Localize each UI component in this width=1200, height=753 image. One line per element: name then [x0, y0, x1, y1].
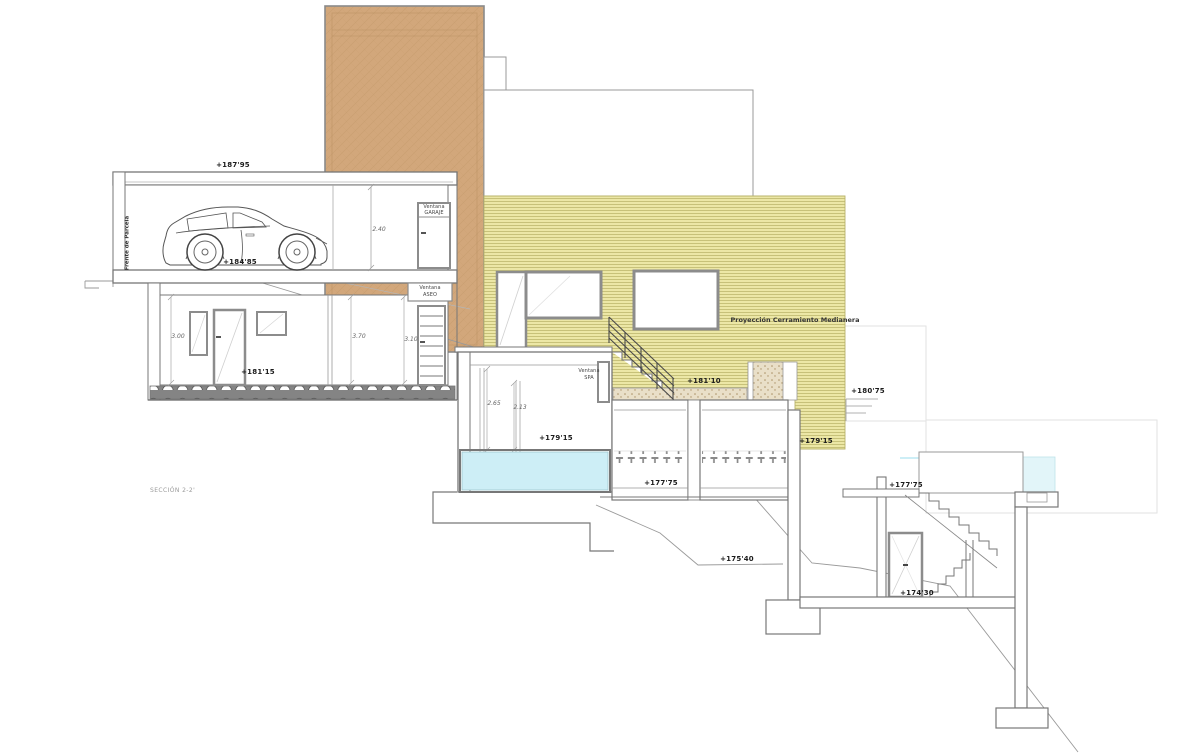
window-upper-1 [526, 272, 601, 318]
level-lower-terrace: +175'40 [720, 556, 754, 563]
spa-pool-water [462, 452, 608, 490]
frente-parcela-note: Frente de Parcela [125, 216, 131, 271]
dim-room-c: 3.10 [404, 337, 417, 343]
level-rooms-floor: +177'75 [644, 480, 678, 487]
level-garage-roof: +187'95 [216, 162, 250, 169]
window-label-spa-1: Ventana [578, 369, 599, 374]
level-basement-floor: +174'30 [900, 590, 934, 597]
dim-room-a: 3.00 [171, 334, 184, 340]
window-label-aseo-2: ASEO [423, 293, 437, 298]
spa-window [598, 362, 609, 402]
level-wall-base: +179'15 [799, 438, 833, 445]
window-label-garaje-2: GARAJE [424, 211, 443, 216]
section-drawing-canvas: +187'95 +184'85 +181'15 +181'10 +180'75 … [0, 0, 1200, 753]
vaulted-slab [150, 386, 455, 399]
window-label-aseo-1: Ventana [419, 286, 440, 291]
proyeccion-medianera-note: Proyección Cerramiento Medianera [731, 317, 860, 324]
level-terrace-landing: +181'10 [687, 378, 721, 385]
window-label-spa-2: SPA [584, 376, 594, 381]
dim-spa-b: 2.13 [513, 405, 526, 411]
right-pool [1023, 457, 1055, 492]
level-spa-floor: +179'15 [539, 435, 573, 442]
aseo-window [418, 306, 445, 385]
upper-steps [846, 399, 878, 421]
right-room [919, 452, 1023, 493]
section-linework [0, 0, 1200, 753]
basement-door [889, 533, 922, 597]
section-title: SECCIÓN 2-2' [150, 488, 195, 494]
level-right-upper: +180'75 [851, 388, 885, 395]
joist-row [702, 451, 786, 463]
dim-room-b: 3.70 [352, 334, 365, 340]
lower-rooms [600, 400, 790, 500]
stair-down-lower [930, 553, 970, 597]
pool-foundation [433, 492, 614, 551]
level-ground-floor: +181'15 [241, 369, 275, 376]
footing-right [996, 708, 1048, 728]
dim-garage-height: 2.40 [372, 227, 385, 233]
window-upper-2 [634, 271, 718, 329]
stair-down-upper [919, 493, 997, 556]
upper-massing-outline [484, 57, 753, 196]
joist-row [614, 451, 686, 463]
dim-spa-a: 2.65 [487, 401, 500, 407]
level-right-rooms-floor: +177'75 [889, 482, 923, 489]
level-garage-floor: +184'85 [223, 259, 257, 266]
